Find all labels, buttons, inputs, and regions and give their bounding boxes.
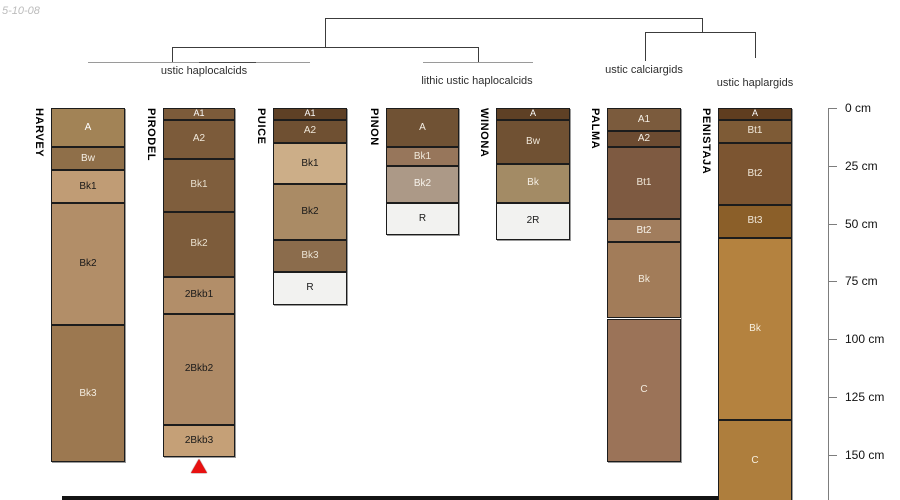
horizon-palma-c: C — [607, 319, 681, 462]
profile-name-label-winona: WINONA — [478, 108, 490, 228]
horizon-label: Bw — [526, 137, 540, 147]
horizon-pinon-a: A — [386, 108, 459, 147]
horizon-label: A1 — [304, 109, 315, 118]
horizon-label: Bw — [81, 154, 95, 164]
horizon-penistaja-a: A — [718, 108, 792, 120]
horizon-puice-bk3: Bk3 — [273, 240, 347, 272]
dendrogram-argids-hline — [645, 32, 756, 33]
red-triangle-marker — [191, 459, 207, 473]
dendrogram-calcids-vline-right — [478, 47, 479, 62]
horizon-penistaja-bt3: Bt3 — [718, 205, 792, 237]
profile-name-label-penistaja: PENISTAJA — [700, 108, 712, 228]
horizon-palma-bt2: Bt2 — [607, 219, 681, 242]
dendrogram-argids-vline-left — [645, 32, 646, 61]
group-label-ustic-haplocalcids: ustic haplocalcids — [161, 65, 247, 77]
horizon-harvey-bk2: Bk2 — [51, 203, 125, 326]
dendrogram-argids-vline-right — [755, 32, 756, 58]
horizon-pirodel-2bkb2: 2Bkb2 — [163, 314, 235, 425]
horizon-palma-bt1: Bt1 — [607, 147, 681, 219]
horizon-label: Bk1 — [190, 180, 207, 190]
horizon-pirodel-bk2: Bk2 — [163, 212, 235, 277]
dendrogram-root-hline — [325, 18, 703, 19]
dendrogram-calcids-hline — [172, 47, 479, 48]
horizon-label: Bk1 — [414, 152, 431, 162]
depth-tick — [828, 281, 837, 282]
horizon-penistaja-bk: Bk — [718, 238, 792, 421]
horizon-pinon-bk2: Bk2 — [386, 166, 459, 203]
horizon-label: Bt2 — [747, 169, 762, 179]
horizon-harvey-a: A — [51, 108, 125, 147]
horizon-label: 2Bkb2 — [185, 364, 213, 374]
dendrogram-root-vline-left — [325, 18, 326, 48]
horizon-palma-a1: A1 — [607, 108, 681, 131]
horizon-puice-r: R — [273, 272, 347, 304]
horizon-label: Bk — [527, 178, 539, 188]
horizon-pirodel-a1: A1 — [163, 108, 235, 120]
depth-tick — [828, 166, 837, 167]
dendrogram-calcids-vline-left — [172, 47, 173, 62]
group-label-ustic-calciargids: ustic calciargids — [605, 64, 683, 76]
horizon-label: Bt1 — [747, 126, 762, 136]
profile-name-label-puice: PUICE — [255, 108, 267, 228]
horizon-label: Bk2 — [79, 259, 96, 269]
depth-tick — [828, 455, 837, 456]
horizon-label: A — [419, 123, 426, 133]
horizon-label: Bk3 — [79, 389, 96, 399]
horizon-harvey-bk3: Bk3 — [51, 325, 125, 461]
dendrogram-leafline-lithic — [423, 62, 533, 63]
profile-name-label-harvey: HARVEY — [33, 108, 45, 228]
profile-column-penistaja: ABt1Bt2Bt3BkC — [718, 108, 792, 500]
horizon-label: Bt3 — [747, 216, 762, 226]
depth-tick — [828, 397, 837, 398]
dendrogram-root-vline-right — [702, 18, 703, 33]
profile-name-label-pirodel: PIRODEL — [145, 108, 157, 228]
depth-tick — [828, 224, 837, 225]
horizon-winona-2r: 2R — [496, 203, 570, 240]
horizon-winona-bk: Bk — [496, 164, 570, 203]
profile-column-pirodel: A1A2Bk1Bk22Bkb12Bkb22Bkb3 — [163, 108, 235, 457]
horizon-penistaja-bt2: Bt2 — [718, 143, 792, 205]
horizon-label: A2 — [638, 134, 650, 144]
horizon-label: A — [752, 109, 758, 118]
horizon-label: C — [640, 385, 647, 395]
horizon-puice-bk2: Bk2 — [273, 184, 347, 240]
horizon-harvey-bw: Bw — [51, 147, 125, 170]
horizon-label: C — [751, 456, 758, 466]
horizon-label: Bk2 — [190, 239, 207, 249]
horizon-winona-bw: Bw — [496, 120, 570, 164]
dendrogram-leafline-haplocalcids-overlap — [199, 62, 256, 63]
depth-tick-label: 100 cm — [845, 332, 884, 346]
horizon-penistaja-c: C — [718, 420, 792, 500]
horizon-label: R — [306, 283, 313, 293]
horizon-label: Bt2 — [636, 226, 651, 236]
horizon-label: A — [530, 109, 536, 118]
profile-column-winona: ABwBk2R — [496, 108, 570, 240]
horizon-label: A1 — [638, 115, 650, 125]
horizon-pirodel-2bkb1: 2Bkb1 — [163, 277, 235, 314]
profile-column-harvey: ABwBk1Bk2Bk3 — [51, 108, 125, 462]
profile-column-palma: A1A2Bt1Bt2BkC — [607, 108, 681, 462]
horizon-label: 2R — [527, 216, 540, 226]
horizon-label: Bk1 — [301, 159, 318, 169]
horizon-penistaja-bt1: Bt1 — [718, 120, 792, 143]
horizon-winona-a: A — [496, 108, 570, 120]
horizon-label: Bk — [749, 324, 761, 334]
depth-tick — [828, 108, 837, 109]
horizon-puice-a1: A1 — [273, 108, 347, 120]
horizon-label: A1 — [193, 109, 204, 118]
horizon-pinon-bk1: Bk1 — [386, 147, 459, 166]
profile-column-puice: A1A2Bk1Bk2Bk3R — [273, 108, 347, 305]
horizon-puice-a2: A2 — [273, 120, 347, 143]
horizon-pirodel-a2: A2 — [163, 120, 235, 159]
horizon-label: Bk2 — [301, 207, 318, 217]
horizon-label: Bt1 — [636, 178, 651, 188]
bottom-bar — [62, 496, 718, 500]
depth-tick-label: 150 cm — [845, 448, 884, 462]
horizon-label: Bk3 — [301, 251, 318, 261]
group-label-lithic-ustic-haplocalcids: lithic ustic haplocalcids — [421, 75, 532, 87]
horizon-label: A2 — [193, 134, 205, 144]
horizon-palma-a2: A2 — [607, 131, 681, 147]
depth-tick-label: 25 cm — [845, 159, 878, 173]
horizon-label: Bk1 — [79, 182, 96, 192]
horizon-harvey-bk1: Bk1 — [51, 170, 125, 202]
horizon-pirodel-2bkb3: 2Bkb3 — [163, 425, 235, 457]
horizon-palma-bk: Bk — [607, 242, 681, 318]
horizon-pirodel-bk1: Bk1 — [163, 159, 235, 212]
profile-column-pinon: ABk1Bk2R — [386, 108, 459, 235]
group-label-ustic-haplargids: ustic haplargids — [717, 77, 793, 89]
horizon-label: A2 — [304, 126, 316, 136]
horizon-label: Bk — [638, 275, 650, 285]
horizon-label: 2Bkb3 — [185, 436, 213, 446]
depth-tick-label: 75 cm — [845, 274, 878, 288]
horizon-pinon-r: R — [386, 203, 459, 235]
profile-name-label-pinon: PINON — [368, 108, 380, 228]
horizon-label: Bk2 — [414, 179, 431, 189]
date-label: 5-10-08 — [2, 5, 40, 17]
horizon-label: 2Bkb1 — [185, 290, 213, 300]
profile-name-label-palma: PALMA — [589, 108, 601, 228]
soil-profile-figure: 5-10-08 ustic haplocalcids lithic ustic … — [0, 0, 900, 500]
depth-tick-label: 50 cm — [845, 217, 878, 231]
depth-tick — [828, 339, 837, 340]
depth-tick-label: 125 cm — [845, 390, 884, 404]
horizon-label: A — [85, 123, 92, 133]
depth-tick-label: 0 cm — [845, 101, 871, 115]
horizon-puice-bk1: Bk1 — [273, 143, 347, 185]
horizon-label: R — [419, 214, 426, 224]
